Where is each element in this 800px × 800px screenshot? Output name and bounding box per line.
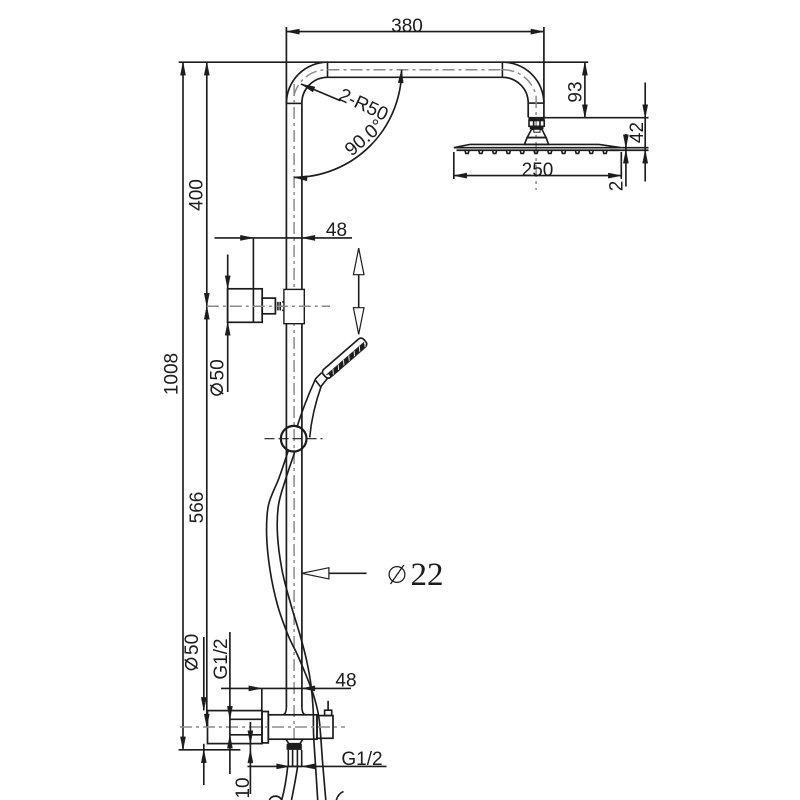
svg-text:2: 2 [607,181,628,192]
svg-text:22: 22 [411,557,444,593]
svg-text:250: 250 [522,160,554,181]
svg-text:1008: 1008 [162,353,183,395]
svg-text:G1/2: G1/2 [211,638,232,679]
svg-text:48: 48 [326,220,347,241]
svg-text:93: 93 [566,81,587,102]
svg-text:G1/2: G1/2 [341,749,382,770]
svg-text:48: 48 [335,671,356,692]
svg-text:566: 566 [187,492,208,524]
svg-text:380: 380 [391,16,423,37]
svg-text:10: 10 [233,777,254,798]
svg-text:50: 50 [208,359,229,380]
svg-text:42: 42 [627,122,648,143]
svg-text:400: 400 [187,179,208,211]
svg-text:50: 50 [182,634,203,655]
